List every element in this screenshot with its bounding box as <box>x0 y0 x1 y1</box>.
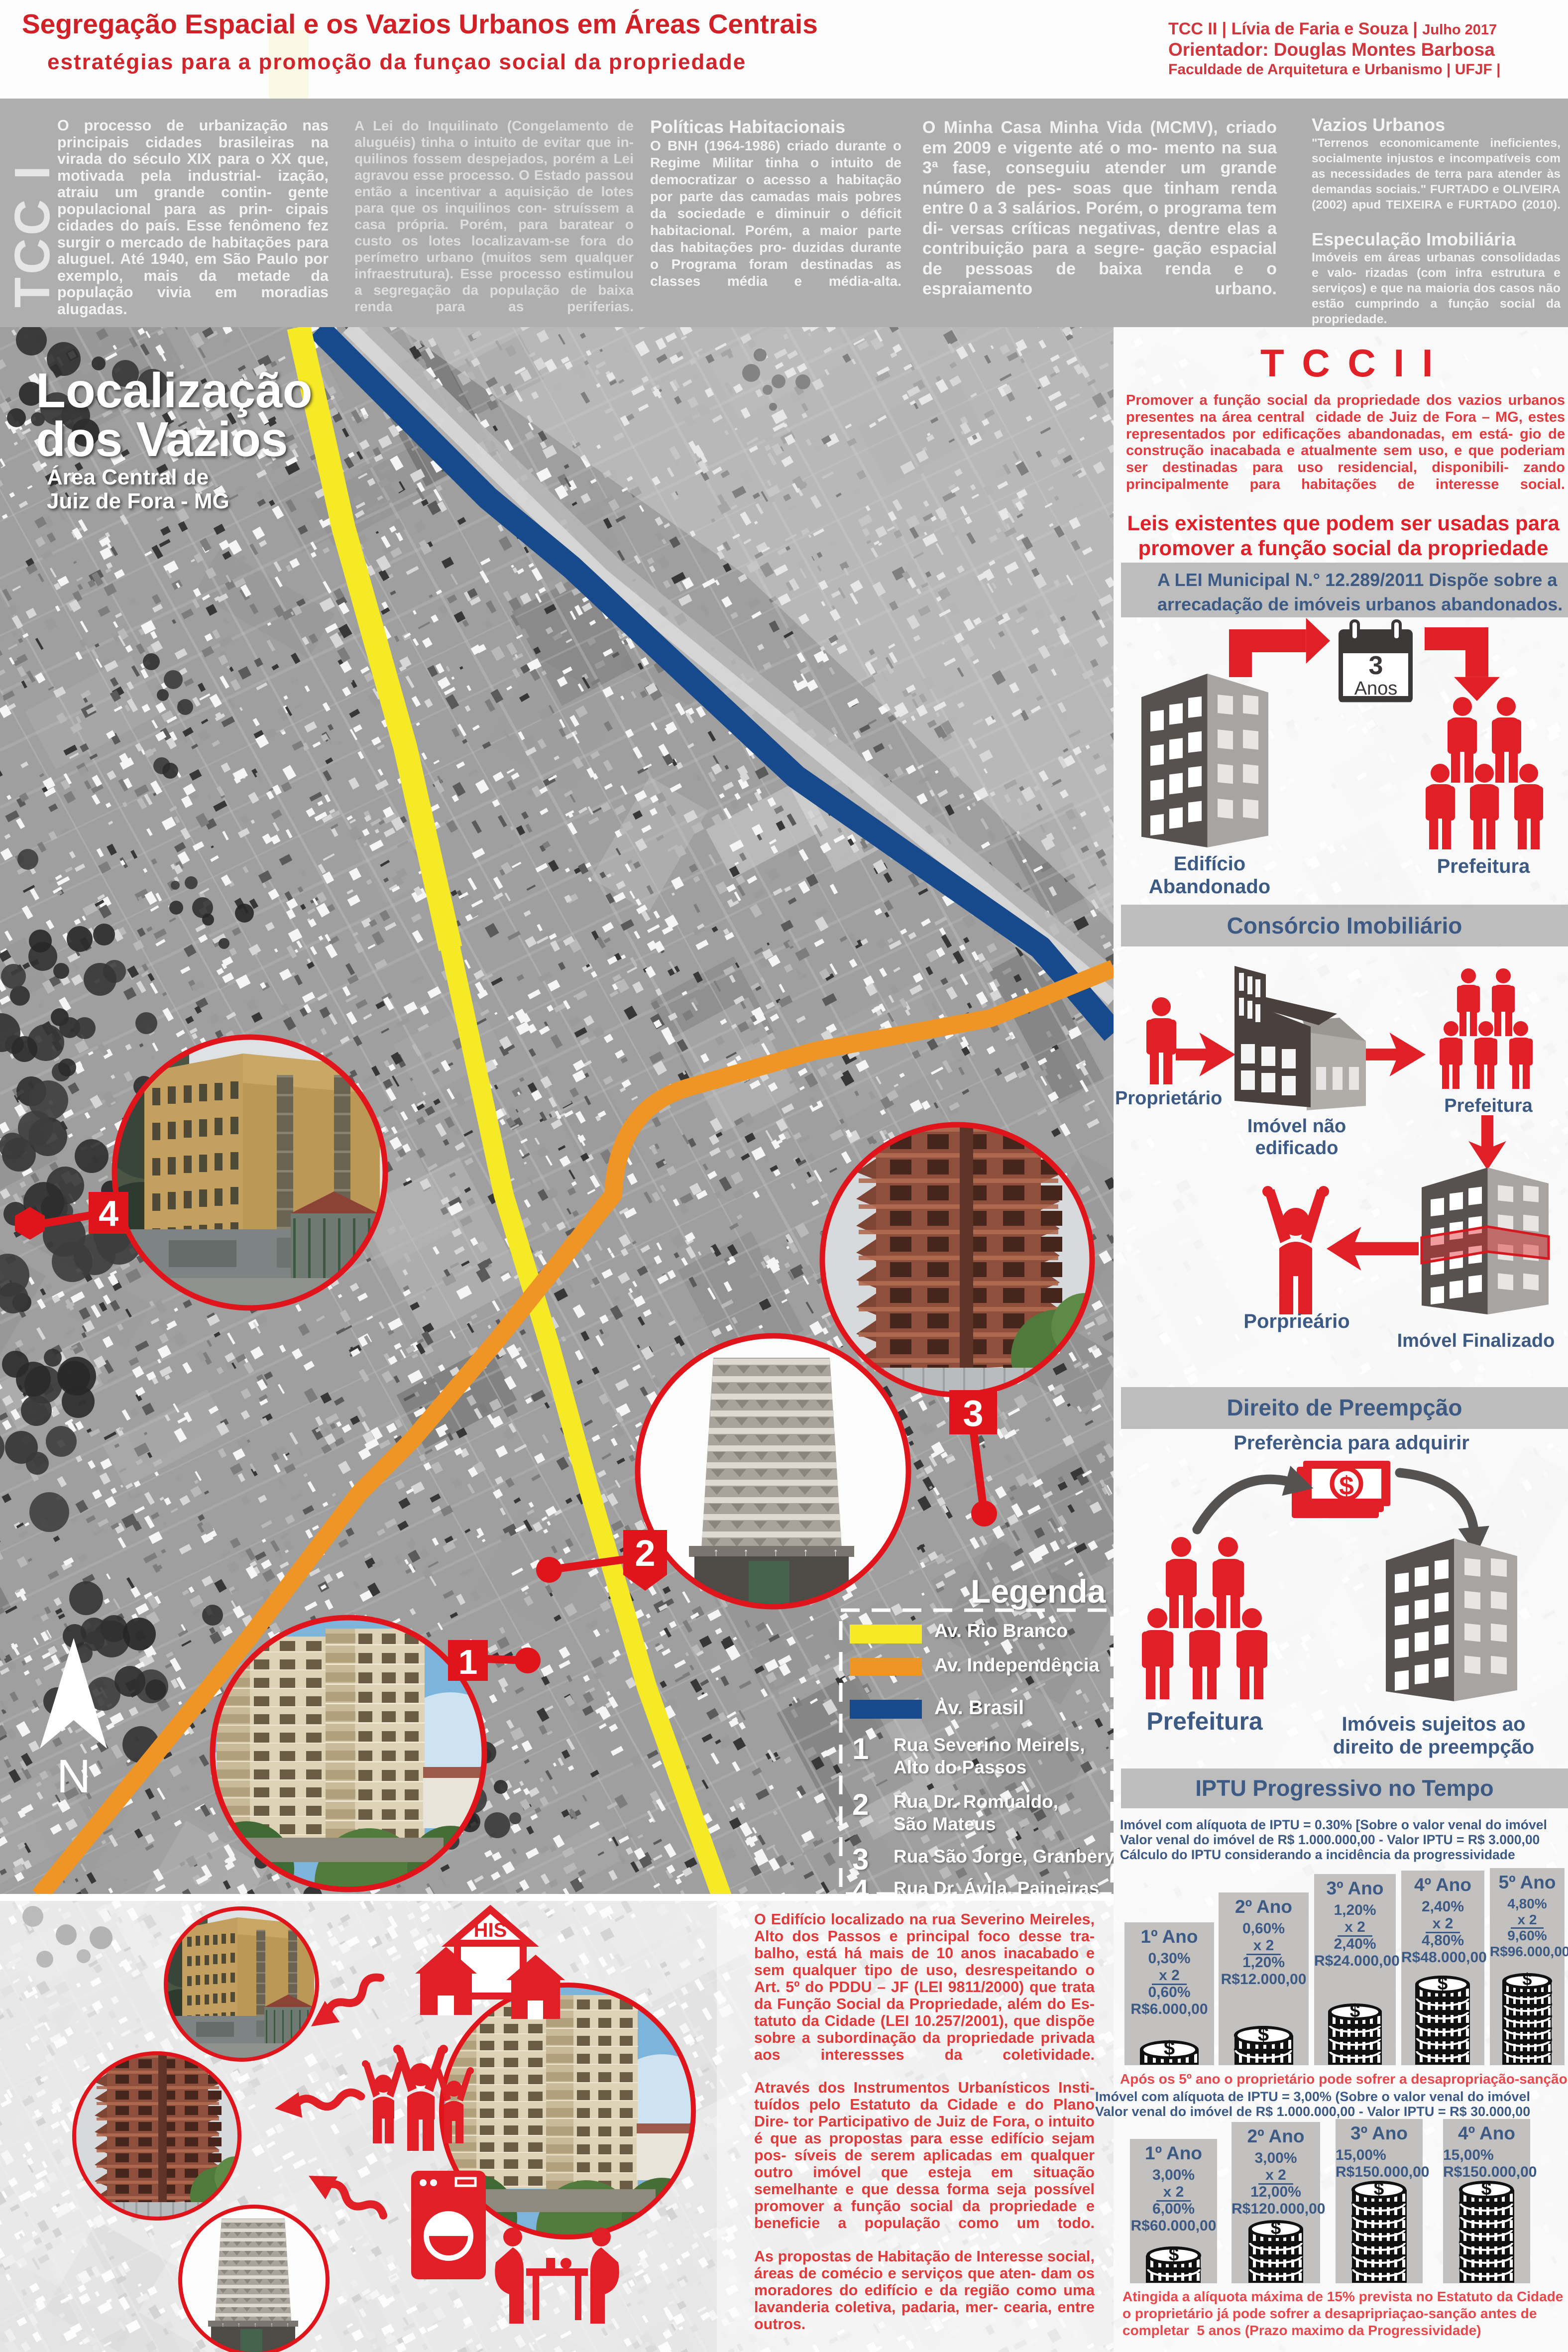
svg-text:HIS: HIS <box>474 1919 507 1941</box>
svg-text:↑: ↑ <box>803 1546 808 1558</box>
svg-text:$: $ <box>1374 2178 1384 2199</box>
svg-text:$: $ <box>1339 1471 1353 1501</box>
svg-text:↑: ↑ <box>773 1546 779 1558</box>
svg-text:↑: ↑ <box>254 2321 257 2328</box>
svg-text:↑: ↑ <box>833 1546 838 1558</box>
svg-text:3: 3 <box>963 1393 983 1434</box>
svg-text:↑: ↑ <box>743 1546 749 1558</box>
svg-text:$: $ <box>1481 2178 1492 2199</box>
svg-text:3: 3 <box>1369 651 1383 680</box>
svg-text:$: $ <box>1350 2000 1360 2021</box>
svg-text:$: $ <box>1523 1970 1532 1989</box>
svg-text:↑: ↑ <box>222 2321 224 2328</box>
svg-text:$: $ <box>1164 2037 1175 2059</box>
svg-text:↑: ↑ <box>286 2321 289 2328</box>
svg-text:$: $ <box>1438 1973 1448 1994</box>
svg-text:4: 4 <box>99 1194 118 1234</box>
svg-text:Anos: Anos <box>1354 678 1398 699</box>
svg-text:N: N <box>57 1750 91 1803</box>
svg-text:↑: ↑ <box>713 1546 719 1558</box>
svg-text:$: $ <box>1258 2023 1269 2045</box>
svg-text:↑: ↑ <box>270 2321 273 2328</box>
svg-text:2: 2 <box>635 1532 655 1574</box>
svg-text:1: 1 <box>458 1643 478 1681</box>
svg-text:$: $ <box>1169 2244 1179 2264</box>
svg-text:$: $ <box>1271 2218 1281 2238</box>
svg-text:↑: ↑ <box>237 2321 240 2328</box>
